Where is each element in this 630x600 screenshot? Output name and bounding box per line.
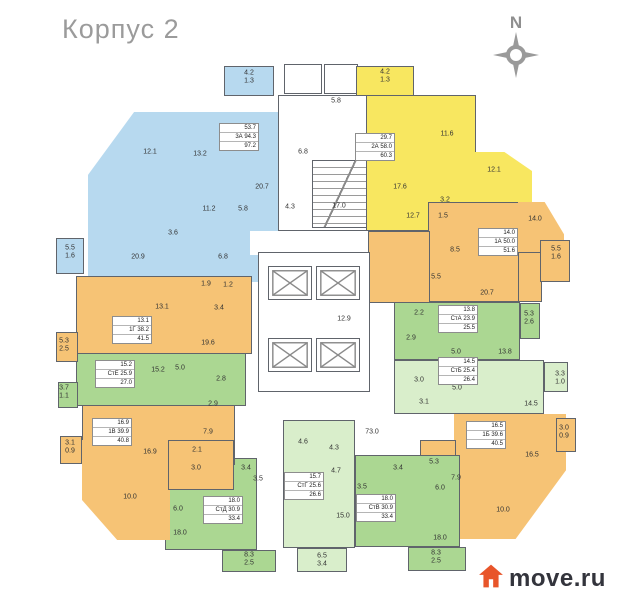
apartment-1g-balcony bbox=[56, 332, 78, 362]
compass-rose-icon bbox=[489, 68, 543, 85]
elevator-shaft bbox=[316, 338, 360, 372]
apartment-1g-region[interactable] bbox=[76, 276, 252, 354]
apartment-stg-balcony bbox=[297, 548, 347, 572]
house-icon bbox=[478, 563, 504, 594]
apartment-1a-bay bbox=[540, 240, 570, 282]
room-area-label: 73.0 bbox=[365, 429, 379, 436]
apartment-stv-balcony bbox=[408, 547, 466, 571]
compass-north-label: N bbox=[489, 14, 543, 31]
apartment-1a-strip[interactable] bbox=[518, 252, 542, 302]
apartment-1v-bath[interactable] bbox=[168, 440, 234, 490]
apartment-2a-balcony bbox=[356, 66, 414, 96]
apartment-ste-balcony bbox=[58, 382, 78, 408]
brand-name: move.ru bbox=[509, 565, 606, 593]
compass: N bbox=[489, 14, 543, 86]
apartment-stg-region[interactable] bbox=[283, 420, 355, 548]
elevator-shaft bbox=[316, 266, 360, 300]
apartment-stb-region[interactable] bbox=[394, 360, 544, 414]
apartment-1v-corner-room[interactable] bbox=[82, 440, 170, 540]
staircase bbox=[312, 160, 368, 228]
apartment-2a-right-room[interactable] bbox=[440, 152, 532, 202]
apartment-sta-region[interactable] bbox=[394, 302, 520, 360]
apartment-std-balcony bbox=[222, 550, 276, 572]
brand-logo[interactable]: move.ru bbox=[478, 563, 606, 594]
apartment-3a-balcony bbox=[224, 66, 274, 96]
elevator-shaft bbox=[268, 266, 312, 300]
apartment-stb-balcony bbox=[544, 362, 568, 392]
floor-plan: 12.113.220.711.25.83.620.96.84.21.35.51.… bbox=[0, 0, 630, 600]
apartment-1a-region[interactable] bbox=[428, 202, 520, 302]
apartment-3a-region[interactable] bbox=[88, 112, 280, 282]
elevator-shaft bbox=[268, 338, 312, 372]
apartment-stv-region[interactable] bbox=[355, 455, 460, 547]
apartment-ste-region[interactable] bbox=[76, 352, 246, 406]
facade-box-right bbox=[324, 64, 358, 94]
facade-box-left bbox=[284, 64, 322, 94]
apartment-1a-hall[interactable] bbox=[368, 231, 430, 303]
apartment-3a-bay bbox=[56, 238, 84, 274]
floor-plan-page: Корпус 2 N bbox=[0, 0, 630, 600]
apartment-1v-balcony bbox=[60, 436, 82, 464]
apartment-1b-region[interactable] bbox=[454, 414, 566, 539]
apartment-sta-balcony bbox=[520, 303, 540, 339]
apartment-1b-balcony bbox=[556, 418, 576, 452]
